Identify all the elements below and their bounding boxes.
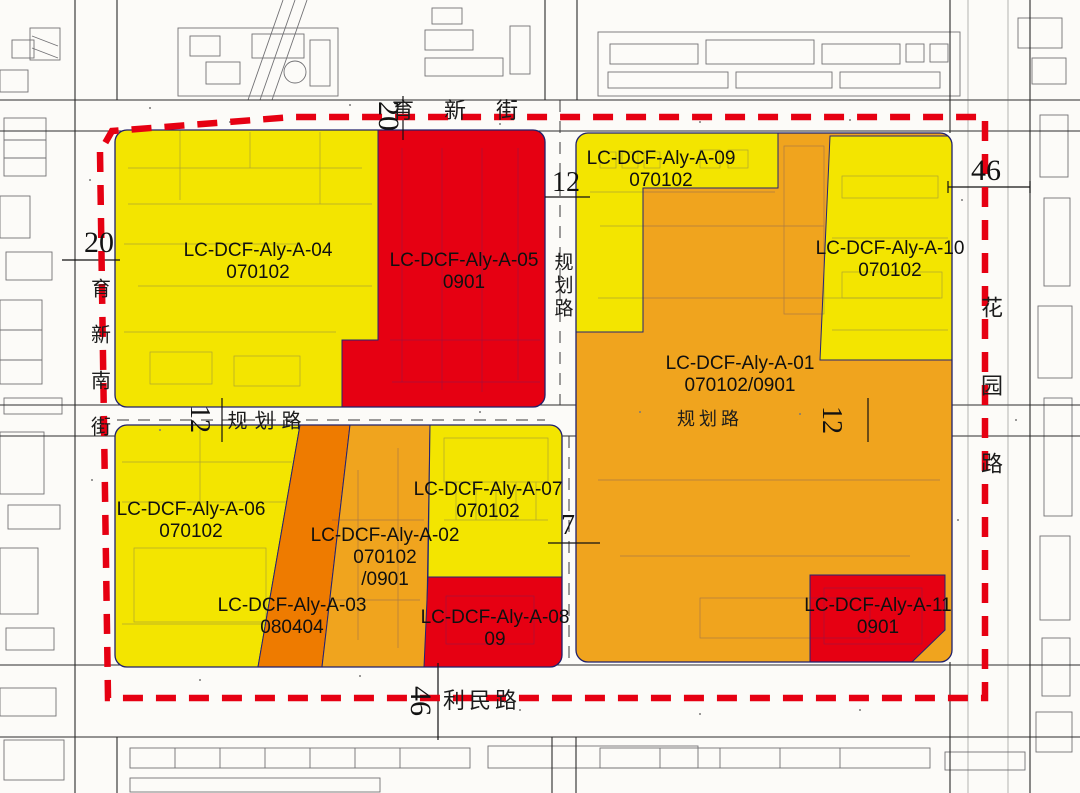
dim-label-inner-road-right: 12 [815,406,847,434]
parcel-use: 070102 [816,260,965,282]
parcel-use: 080404 [218,617,367,639]
parcel-code: LC-DCF-Aly-A-01 [666,353,815,375]
label-layer: LC-DCF-Aly-A-04 070102 LC-DCF-Aly-A-05 0… [0,0,1080,793]
parcel-label-a01: LC-DCF-Aly-A-01 070102/0901 [666,353,815,397]
dim-label-east-road: 46 [971,154,1001,188]
parcel-code: LC-DCF-Aly-A-11 [804,595,951,617]
parcel-use: 070102 [587,170,736,192]
parcel-use: 070102 [414,501,563,523]
parcel-use: 070102 [311,547,460,569]
dim-label-inner-road-mid: 7 [561,510,575,542]
parcel-label-a09: LC-DCF-Aly-A-09 070102 [587,148,736,192]
planning-map: LC-DCF-Aly-A-04 070102 LC-DCF-Aly-A-05 0… [0,0,1080,793]
parcel-label-a06: LC-DCF-Aly-A-06 070102 [117,499,266,543]
parcel-code: LC-DCF-Aly-A-10 [816,238,965,260]
parcel-code: LC-DCF-Aly-A-07 [414,479,563,501]
parcel-code: LC-DCF-Aly-A-09 [587,148,736,170]
dim-label-south-road: 46 [403,686,437,716]
parcel-code: LC-DCF-Aly-A-02 [311,525,460,547]
parcel-code: LC-DCF-Aly-A-06 [117,499,266,521]
dim-label-west-road: 20 [84,226,114,260]
parcel-code: LC-DCF-Aly-A-08 [421,607,570,629]
parcel-use: 070102/0901 [666,375,815,397]
parcel-use: 09 [421,629,570,651]
parcel-label-a10: LC-DCF-Aly-A-10 070102 [816,238,965,282]
parcel-label-a02: LC-DCF-Aly-A-02 070102 /0901 [311,525,460,591]
road-label-east: 花园路 [974,296,1006,530]
parcel-use: 0901 [804,617,951,639]
road-label-inner-left: 规划路 [228,405,309,434]
parcel-label-a03: LC-DCF-Aly-A-03 080404 [218,595,367,639]
dim-label-inner-road-left: 12 [183,405,215,433]
parcel-use: 070102 [117,521,266,543]
parcel-use: 070102 [184,262,333,284]
road-label-inner-vertical: 规划路 [549,252,576,321]
parcel-label-a05: LC-DCF-Aly-A-05 0901 [390,250,539,294]
parcel-code: LC-DCF-Aly-A-04 [184,240,333,262]
parcel-label-a08: LC-DCF-Aly-A-08 09 [421,607,570,651]
dim-label-north-road: 20 [371,101,405,131]
parcel-use-2: /0901 [311,569,460,591]
road-label-inner-right: 规划路 [677,405,743,431]
parcel-label-a04: LC-DCF-Aly-A-04 070102 [184,240,333,284]
dim-label-inner-road-top: 12 [552,167,580,199]
parcel-code: LC-DCF-Aly-A-03 [218,595,367,617]
parcel-label-a11: LC-DCF-Aly-A-11 0901 [804,595,951,639]
road-label-south: 利民路 [443,683,521,715]
parcel-use: 0901 [390,272,539,294]
road-label-north: 育新街 [392,93,548,125]
parcel-label-a07: LC-DCF-Aly-A-07 070102 [414,479,563,523]
road-label-west: 育新南街 [85,278,114,462]
parcel-code: LC-DCF-Aly-A-05 [390,250,539,272]
